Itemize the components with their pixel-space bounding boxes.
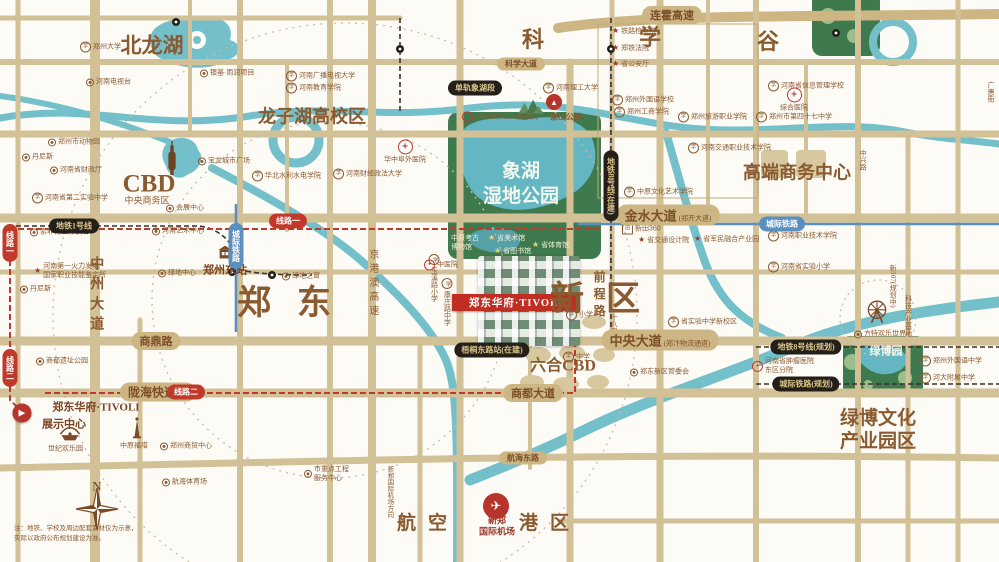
metro-label-pill: 地铁8号线(在建)	[604, 150, 619, 221]
compass-rose-icon	[74, 486, 120, 532]
cbd-tower-icon	[166, 141, 178, 175]
metro-label-pill-text: 单轨象湖段	[455, 84, 495, 93]
poi-label: ★省公安厅	[612, 59, 649, 69]
poi-text: 河南省财政厅	[60, 165, 102, 174]
poi-text: 宝龙城市广场	[208, 156, 250, 165]
area-label: 新郑国际机场方向	[385, 466, 393, 518]
poi-text: 世纪欢乐园	[48, 444, 83, 453]
poi-dot-icon	[166, 204, 174, 212]
school-icon: 学	[286, 83, 297, 94]
poi-label: 学河大附属中学	[920, 373, 975, 384]
sales-center-pin-icon: ▶	[13, 404, 32, 423]
road-label-pill-text: 商都大道	[511, 388, 555, 400]
school-icon: 学	[286, 71, 297, 82]
hospital-cross-icon: +	[752, 361, 763, 372]
poi-label: 学郑州工商学院	[614, 107, 669, 118]
metro-label-pill: 地铁1号线	[49, 219, 99, 234]
poi-text: 河南第一火力发电 国家职业技能鉴定所	[43, 262, 106, 280]
poi-text: 河大附属中学	[933, 373, 975, 382]
hills-icon	[517, 97, 545, 116]
poi-text: 省图书馆	[503, 246, 531, 255]
poi-label: 学郑州外国语中学	[920, 356, 982, 367]
poi-text: 河南省实验小学	[781, 262, 830, 271]
mountain-badge-landmark: ▲	[546, 94, 562, 110]
school-icon: 学	[612, 95, 623, 106]
area-label: 绿博园	[870, 346, 903, 359]
poi-text: 河南理工大学	[556, 83, 598, 92]
poi-text: 玉溪路小学	[429, 267, 438, 302]
area-label: 中央商务区	[124, 196, 169, 207]
poi-text: 河南财经政法大学	[346, 169, 402, 178]
poi-text: 中原文化艺术学院	[637, 187, 693, 196]
poi-label: 学河南省第二实验中学	[32, 193, 108, 204]
compass-rose-landmark	[74, 486, 120, 532]
poi-text: 郑州外国语学校	[625, 95, 674, 104]
school-icon: 学	[442, 278, 453, 289]
hospital-cross-icon: +	[462, 112, 473, 123]
poi-text: 省美术馆	[497, 233, 525, 242]
school-icon: 学	[768, 231, 779, 242]
route-label-pill: 线路二	[3, 349, 18, 387]
star-icon: ★	[494, 246, 501, 256]
ferris-wheel-icon	[865, 299, 889, 325]
poi-text: 中医院	[437, 260, 458, 269]
area-label: 郑东华府·TIVOLI	[52, 402, 139, 415]
poi-dot-icon	[854, 330, 862, 338]
poi-text: 河南交通职业技术学院	[701, 143, 771, 152]
location-map: 郑东华府·TIVOLI 注：地铁、学校及周边配套素材仅为示意， 实际以政府公布规…	[0, 0, 999, 562]
poi-label: 学河南广播电视大学	[286, 71, 355, 82]
poi-label: 学河南理工大学	[543, 83, 598, 94]
poi-label: 河南省财政厅	[50, 165, 102, 174]
road-label-pill: 商都大道	[503, 384, 563, 402]
amusement-park-icon	[58, 426, 82, 443]
poi-text: 河南教育学院	[299, 83, 341, 92]
metro-label-pill: 单轨象湖段	[448, 81, 502, 96]
poi-text: 郑州外国语中学	[933, 356, 982, 365]
poi-text: 河南广播电视大学	[299, 71, 355, 80]
poi-text: 丹尼斯	[32, 152, 53, 161]
poi-text: 郑州市第四十七中学	[769, 112, 832, 121]
poi-label: ★省美术馆	[488, 233, 525, 243]
poi-label: 学郑州外国语学校	[612, 95, 674, 106]
school-icon: 学	[566, 310, 577, 321]
poi-label: 郑东新区管委会	[630, 367, 689, 376]
poi-text: 郑东新区管委会	[640, 367, 689, 376]
poi-text: 郑州商贸中心	[170, 441, 212, 450]
road-label-pill-text: 科学大道	[505, 60, 537, 69]
road-label-pill-text: 商鼎路	[140, 336, 173, 348]
poi-text: 市重点工程 服务中心	[314, 465, 349, 483]
school-icon: 学	[688, 143, 699, 154]
star-icon: ★	[34, 266, 41, 276]
poi-label: 方特欢乐世界	[854, 329, 906, 338]
star-icon: ★	[638, 235, 645, 245]
poi-text: 郑州旅游职业学院	[691, 112, 747, 121]
poi-label: 会展中心	[166, 203, 204, 212]
poi-text: 华北水利水电学院	[265, 171, 321, 180]
poi-label: 学郑州市第四十七中学	[756, 112, 832, 123]
poi-label: +河南省肿瘤医院 东区分院	[752, 357, 814, 375]
poi-dot-icon	[282, 272, 290, 280]
school-icon: 学	[333, 169, 344, 180]
poi-label: 绿地中心	[158, 268, 196, 277]
poi-text: 郑州市动物园	[58, 137, 100, 146]
poi-dot-icon	[20, 285, 28, 293]
poi-text: 省体育馆	[541, 240, 569, 249]
poi-label: 丹尼斯	[22, 152, 53, 161]
area-label: 科	[522, 27, 544, 53]
poi-text: 省军民融合产业园	[703, 234, 759, 243]
poi-text: 会展中心	[176, 203, 204, 212]
road-label-pill-subtext: (郑汴物流通道)	[664, 340, 711, 348]
school-icon: 学	[756, 112, 767, 123]
poi-label: 河南艺术中心	[152, 226, 204, 235]
poi-text: 省交通设计院	[647, 235, 689, 244]
rail-label-pill-text: 城际铁路	[232, 230, 241, 262]
school-icon: 学	[252, 171, 263, 182]
star-icon: ★	[488, 233, 495, 243]
road-label-pill: 航海东路	[499, 452, 547, 465]
metro-label-pill: 城际铁路(规划)	[772, 377, 839, 392]
poi-dot-icon	[50, 166, 58, 174]
poi-label: ★省军民融合产业园	[694, 234, 759, 244]
poi-label: 学小学	[566, 310, 593, 321]
poi-label: 学河南职业技术学院	[768, 231, 837, 242]
poi-dot-icon	[86, 78, 94, 86]
cbd-tower-landmark	[166, 141, 178, 175]
poi-text: 中原福塔	[120, 441, 148, 450]
school-icon: 学	[768, 262, 779, 273]
poi-label: 学河南教育学院	[286, 83, 341, 94]
area-label: 龙子湖高校区	[258, 106, 366, 127]
poi-text: 银基·雨润项目	[210, 68, 254, 77]
poi-label: 学河南交通职业技术学院	[688, 143, 771, 154]
area-label: 高端商务中心	[743, 162, 851, 183]
amusement-ship-landmark	[58, 426, 82, 443]
road-label-pill-text: 中央大道	[610, 334, 662, 349]
road-label-pill-text: 连霍高速	[650, 10, 694, 22]
school-icon: 学	[80, 42, 91, 53]
poi-text: 郑州大学	[93, 42, 121, 51]
star-icon: ★	[694, 234, 701, 244]
metro-label-pill: 梧桐东路站(在建)	[454, 343, 529, 358]
school-icon: 学	[920, 356, 931, 367]
poi-text: 商都遗址公园	[46, 356, 88, 365]
poi-text: 中原考古 博物馆	[451, 234, 479, 252]
hospital-cross-icon: +	[787, 87, 802, 102]
poi-dot-icon	[160, 442, 168, 450]
poi-text: 河南电视台	[96, 77, 131, 86]
poi-text: 省公安厅	[621, 59, 649, 68]
area-label: 北龙湖	[121, 34, 184, 59]
school-icon: 学	[668, 317, 679, 328]
poi-label: +华中阜外医院	[384, 139, 426, 164]
star-icon: ★	[612, 26, 619, 36]
route-label-pill: 线路一	[3, 224, 18, 262]
poi-label: 河南电视台	[86, 77, 131, 86]
star-icon: ★	[532, 240, 539, 250]
poi-label: 绿地之窗	[282, 271, 320, 280]
area-label: 航空	[397, 513, 459, 535]
poi-label: ★省体育馆	[532, 240, 569, 250]
school-icon: 学	[614, 107, 625, 118]
metro-label-pill-text: 地铁8号线(在建)	[607, 157, 616, 214]
green-hills-landmark	[517, 97, 545, 116]
poi-text: 铁路检察院	[621, 26, 656, 35]
poi-label: 中原考古 博物馆	[451, 234, 479, 252]
metro-label-pill-text: 城际铁路(规划)	[779, 380, 832, 389]
poi-dot-icon	[22, 153, 30, 161]
poi-label: 学河南省实验小学	[768, 262, 830, 273]
area-label: 象湖	[502, 161, 540, 183]
poi-dot-icon	[36, 357, 44, 365]
route-label-pill-text: 线路二	[174, 388, 198, 397]
road-label-pill: 科学大道	[497, 58, 545, 71]
poi-label: ★铁路检察院	[612, 26, 656, 36]
road-label-pill: 商鼎路	[132, 332, 181, 350]
school-icon: 学	[32, 193, 43, 204]
poi-label: 学中学	[563, 352, 590, 363]
poi-text: 郑州工商学院	[627, 107, 669, 116]
poi-label: +综合医院	[780, 87, 808, 112]
area-label: 广惠街	[987, 82, 995, 103]
school-icon: 学	[543, 83, 554, 94]
poi-label: ★河南第一火力发电 国家职业技能鉴定所	[34, 262, 106, 280]
poi-text: 省实验中学新校区	[681, 317, 737, 326]
poi-dot-icon	[48, 138, 56, 146]
poi-text: 康庄路中学	[442, 291, 451, 326]
poi-dot-icon	[630, 368, 638, 376]
poi-text: 华中阜外医院	[384, 155, 426, 164]
rail-label-pill: 城际铁路	[229, 223, 244, 269]
poi-label: ★郑铁法院	[612, 43, 649, 53]
poi-text: 新田360	[635, 224, 661, 233]
metro-label-pill-text: 梧桐东路站(在建)	[461, 346, 522, 355]
poi-text: 航海体育场	[172, 477, 207, 486]
poi-text: 综合医院	[780, 103, 808, 112]
area-label: 国际机场	[479, 527, 515, 538]
fota-tower-landmark	[131, 416, 143, 440]
poi-dot-icon	[198, 157, 206, 165]
poi-label: 航海体育场	[162, 477, 207, 486]
zhongyuan-tower-icon	[131, 416, 143, 440]
area-label: 中兴路	[859, 150, 867, 171]
school-icon: 学	[768, 81, 779, 92]
poi-text: 河南省第二实验中学	[45, 193, 108, 202]
poi-text: 绿地之窗	[292, 271, 320, 280]
airport-icon: ✈	[483, 493, 509, 519]
area-label: 港区	[519, 513, 581, 535]
poi-label: 学华北水利水电学院	[252, 171, 321, 182]
poi-label: 学省实验中学新校区	[668, 317, 737, 328]
route-label-pill: 线路二	[167, 385, 205, 400]
area-label: 产业园区	[840, 431, 916, 453]
metro-label-pill-text: 地铁8号线(规划)	[777, 343, 834, 352]
poi-dot-icon	[200, 69, 208, 77]
poi-label: 学郑州旅游职业学院	[678, 112, 747, 123]
rail-label-pill: 城际铁路	[759, 217, 805, 232]
school-icon: 学	[624, 187, 635, 198]
poi-text: 小学	[579, 310, 593, 319]
area-label: 象山公园	[550, 112, 582, 121]
road-label-pill: 中央大道(郑汴物流通道)	[602, 330, 719, 351]
poi-dot-icon	[30, 228, 38, 236]
park-badge-icon: ▲	[546, 94, 562, 110]
ferris-wheel-landmark	[865, 299, 889, 325]
road-label-pill: 连霍高速	[642, 6, 702, 24]
road-label-pill-text: 金水大道	[625, 209, 677, 224]
road-label-pill-subtext: (郑开大道)	[679, 215, 712, 223]
area-label: 新107(规划中)	[889, 264, 897, 307]
poi-label: ★省交通设计院	[638, 235, 689, 245]
poi-text: 丹尼斯	[30, 284, 51, 293]
poi-text: 方特欢乐世界	[864, 329, 906, 338]
poi-dot-icon	[304, 470, 312, 478]
area-label: 绿博文化	[840, 408, 916, 430]
area-label: 谷	[757, 29, 779, 55]
star-icon: ★	[612, 43, 619, 53]
poi-label: 郑州市动物园	[48, 137, 100, 146]
poi-text: 河南职业技术学院	[781, 231, 837, 240]
route-label-pill-text: 线路二	[6, 356, 15, 380]
route-label-pill-text: 线路一	[276, 217, 300, 226]
poi-label: 商都遗址公园	[36, 356, 88, 365]
school-icon: 学	[563, 352, 574, 363]
poi-label: 银基·雨润项目	[200, 68, 254, 77]
poi-text: 河南省肿瘤医院 东区分院	[765, 357, 814, 375]
road-label-pill-text: 航海东路	[507, 454, 539, 463]
poi-dot-icon	[162, 478, 170, 486]
hospital-cross-icon: +	[398, 139, 413, 154]
area-label: 京港澳高速	[366, 249, 378, 319]
poi-text: 绿地中心	[168, 268, 196, 277]
route-label-pill: 线路一	[269, 214, 307, 229]
poi-label: 学中原文化艺术学院	[624, 187, 693, 198]
poi-label: 中原福塔	[120, 441, 148, 450]
area-label: 前程路	[592, 271, 606, 322]
school-icon: 学	[920, 373, 931, 384]
poi-label: 科技产业基地	[903, 295, 912, 337]
poi-dot-icon	[152, 227, 160, 235]
road-label-pill: 金水大道(郑开大道)	[617, 205, 720, 226]
poi-label: 学康庄路中学	[442, 278, 453, 326]
poi-dot-icon	[158, 269, 166, 277]
route-label-pill-text: 线路一	[6, 231, 15, 255]
metro-label-pill-text: 地铁1号线	[56, 222, 92, 231]
poi-label: 丹尼斯	[20, 284, 51, 293]
hospital-cross-icon: +	[424, 260, 435, 271]
location-pin-landmark: ▶	[13, 404, 32, 423]
poi-label: +中医院	[424, 260, 458, 271]
poi-text: 中学	[576, 352, 590, 361]
poi-label: 郑州商贸中心	[160, 441, 212, 450]
poi-label: 宝龙城市广场	[198, 156, 250, 165]
area-label: 郑东	[237, 284, 357, 324]
metro-label-pill: 地铁8号线(规划)	[770, 340, 841, 355]
poi-text: 河南艺术中心	[162, 226, 204, 235]
poi-text: 郑铁法院	[621, 43, 649, 52]
poi-label: 世纪欢乐园	[48, 444, 83, 453]
poi-label: 学河南财经政法大学	[333, 169, 402, 180]
poi-text: 科技产业基地	[903, 295, 912, 337]
poi-label: 学郑州大学	[80, 42, 121, 53]
area-label: 湿地公园	[483, 186, 559, 208]
school-icon: 学	[678, 112, 689, 123]
airport-badge-landmark: ✈	[483, 493, 509, 519]
star-icon: ★	[612, 59, 619, 69]
poi-label: ★省图书馆	[494, 246, 531, 256]
rail-label-pill-text: 城际铁路	[766, 220, 798, 229]
poi-label: 市重点工程 服务中心	[304, 465, 349, 483]
